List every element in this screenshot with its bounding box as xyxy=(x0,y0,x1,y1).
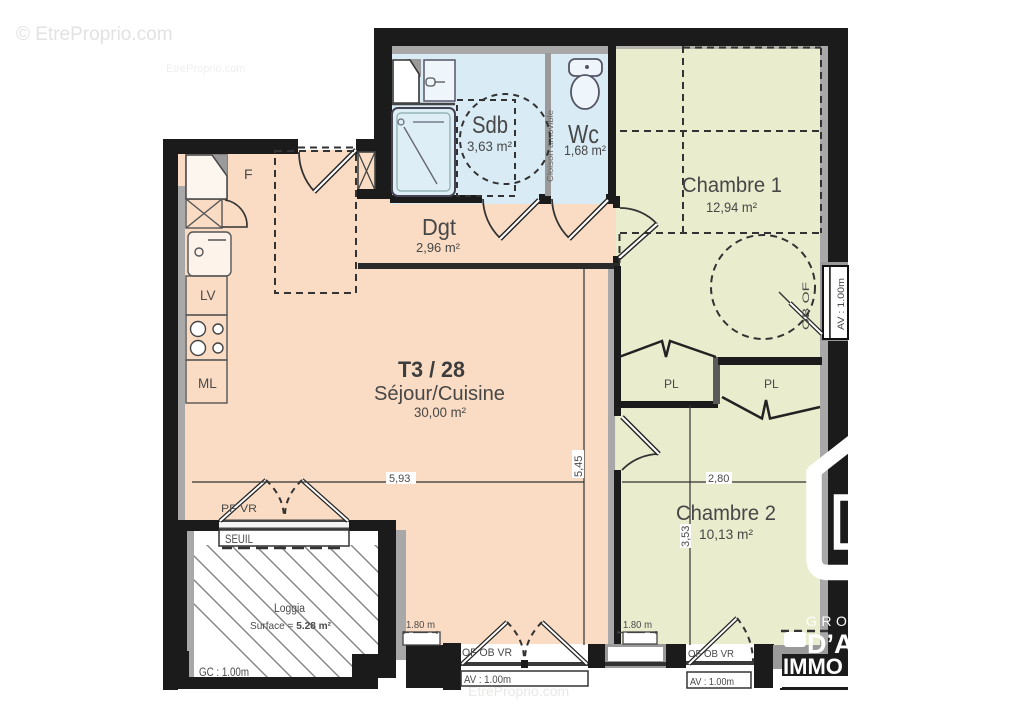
svg-text:Surface = 5.28 m²: Surface = 5.28 m² xyxy=(250,620,331,632)
svg-text:5,93: 5,93 xyxy=(389,473,410,485)
svg-text:1.80 m: 1.80 m xyxy=(406,620,435,631)
svg-text:10,13 m²: 10,13 m² xyxy=(699,526,753,542)
svg-text:OB OF: OB OF xyxy=(801,282,812,330)
svg-text:5,45: 5,45 xyxy=(573,456,585,477)
svg-text:Séjour/Cuisine: Séjour/Cuisine xyxy=(374,383,505,405)
svg-text:PL: PL xyxy=(664,377,679,391)
svg-text:GROUPE: GROUPE xyxy=(806,613,894,629)
svg-text:2,80: 2,80 xyxy=(708,473,729,485)
svg-text:OF OB VR: OF OB VR xyxy=(462,647,512,659)
svg-text:LV: LV xyxy=(200,288,216,303)
svg-text:SEUIL: SEUIL xyxy=(225,532,253,546)
svg-text:PL: PL xyxy=(764,377,779,391)
svg-text:Sdb: Sdb xyxy=(472,112,508,139)
svg-text:1,68 m²: 1,68 m² xyxy=(564,143,606,158)
svg-text:EtreProprio.com: EtreProprio.com xyxy=(166,63,245,75)
svg-text:GC : 1.00m: GC : 1.00m xyxy=(199,667,249,679)
svg-text:3,53: 3,53 xyxy=(680,526,692,547)
svg-text:Cloison amovible: Cloison amovible xyxy=(546,109,555,182)
svg-text:© EtreProprio.com: © EtreProprio.com xyxy=(16,24,173,45)
svg-text:T3 / 28: T3 / 28 xyxy=(398,357,465,382)
svg-text:AV : 1.00m: AV : 1.00m xyxy=(836,278,847,330)
svg-text:Chambre 2: Chambre 2 xyxy=(676,502,776,525)
svg-text:Chambre 1: Chambre 1 xyxy=(682,174,782,197)
svg-text:F: F xyxy=(244,166,253,182)
svg-text:OF OB VR: OF OB VR xyxy=(688,648,734,660)
svg-text:AV : 1.00m: AV : 1.00m xyxy=(690,676,734,688)
svg-text:3,63 m²: 3,63 m² xyxy=(467,139,512,154)
svg-text:AV : 1.00m: AV : 1.00m xyxy=(464,674,511,686)
svg-text:IMMO: IMMO xyxy=(783,654,843,679)
svg-text:PF VR: PF VR xyxy=(221,503,257,515)
svg-text:30,00 m²: 30,00 m² xyxy=(414,404,466,420)
svg-text:Loggia: Loggia xyxy=(274,603,306,615)
svg-text:1.80 m: 1.80 m xyxy=(623,620,652,631)
svg-text:ML: ML xyxy=(198,376,217,391)
svg-text:2,96 m²: 2,96 m² xyxy=(416,240,461,255)
svg-text:Dgt: Dgt xyxy=(422,214,457,240)
svg-text:12,94 m²: 12,94 m² xyxy=(706,200,757,215)
